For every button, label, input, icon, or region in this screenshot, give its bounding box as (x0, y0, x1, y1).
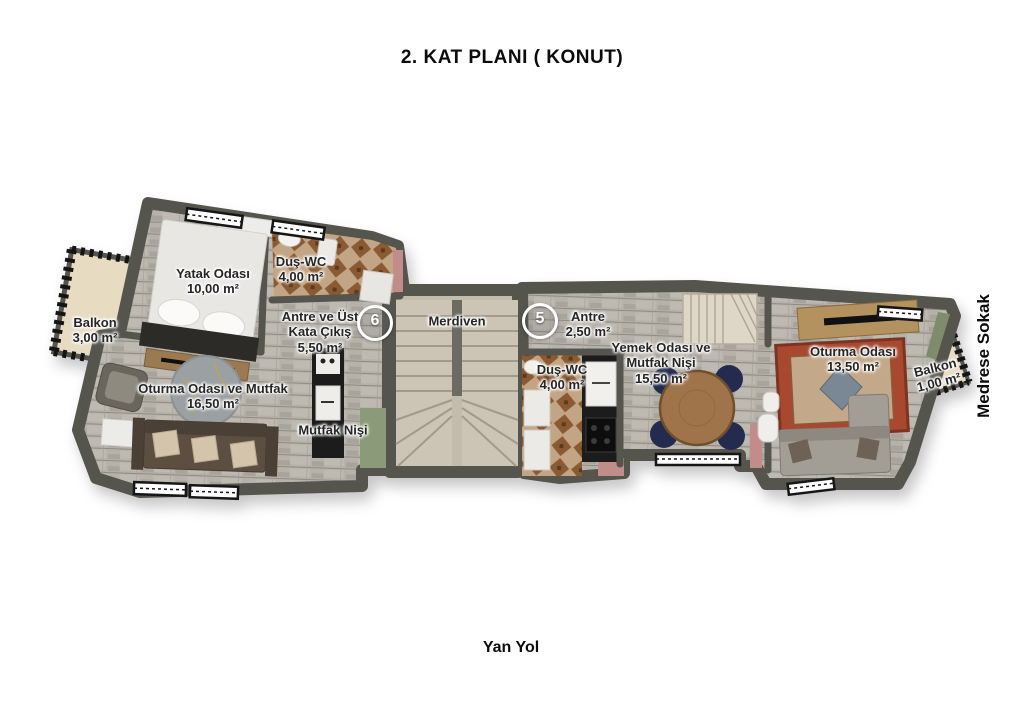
room-area: 2,50 m² (566, 324, 611, 340)
room-area: 13,50 m² (810, 359, 896, 375)
room-label-dus-wc-right: Duş-WC 4,00 m² (537, 346, 588, 408)
unit-number-badge-6: 6 (357, 305, 393, 341)
street-label-medrese-sokak: Medrese Sokak (974, 294, 994, 418)
room-label-balkon-left: Balkon 3,00 m² (73, 299, 118, 361)
room-name: Duş-WC (537, 361, 588, 376)
room-area: 4,00 m² (537, 377, 588, 393)
room-label-oturma-odasi: Oturma Odası 13,50 m² (810, 328, 896, 390)
room-name: Yatak Odası (176, 265, 250, 280)
unit-number-badge-5: 5 (522, 303, 558, 339)
room-label-mutfak-nisi: Mutfak Nişi (298, 406, 367, 437)
window (134, 482, 186, 496)
window (190, 485, 238, 499)
room-name: Yemek Odası ve Mutfak Nişi (611, 340, 710, 371)
room-label-yatak-odasi: Yatak Odası 10,00 m² (176, 250, 250, 312)
road-label-yan-yol: Yan Yol (483, 639, 539, 657)
room-name: Balkon (73, 314, 116, 329)
wc-fixture (758, 414, 778, 442)
window (878, 306, 923, 320)
pink-wall-accent (393, 250, 403, 292)
room-label-dus-wc-left: Duş-WC 4,00 m² (276, 238, 327, 300)
room-name: Merdiven (428, 313, 485, 328)
room-area: 4,00 m² (276, 269, 327, 285)
room-area: 5,50 m² (282, 340, 359, 356)
floor-plan-page: 2. KAT PLANI ( KONUT) Yan Yol Medrese So… (0, 0, 1024, 724)
room-name: Oturma Odası ve Mutfak (138, 380, 288, 395)
room-name: Antre (571, 308, 605, 323)
room-name: Oturma Odası (810, 343, 896, 358)
room-area: 10,00 m² (176, 281, 250, 297)
room-area: 16,50 m² (138, 396, 288, 412)
room-name: Duş-WC (276, 253, 327, 268)
room-label-yemek-odasi: Yemek Odası ve Mutfak Nişi 15,50 m² (611, 324, 710, 402)
room-name: Mutfak Nişi (298, 422, 367, 437)
window (656, 454, 740, 465)
basin-fixture (763, 392, 779, 412)
room-name: Antre ve Üst Kata Çıkış (282, 309, 359, 340)
room-area: 3,00 m² (73, 330, 118, 346)
page-title: 2. KAT PLANI ( KONUT) (401, 47, 623, 69)
room-label-oturma-odasi-mutfak: Oturma Odası ve Mutfak 16,50 m² (138, 365, 288, 427)
room-label-merdiven: Merdiven (428, 297, 485, 328)
room-label-antre-ust-kata-cikis: Antre ve Üst Kata Çıkış 5,50 m² (282, 293, 359, 371)
room-area: 15,50 m² (611, 371, 710, 387)
